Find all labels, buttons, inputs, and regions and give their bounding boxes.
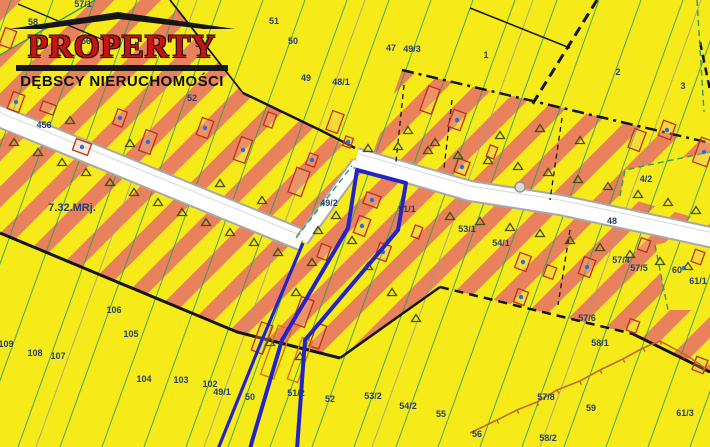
parcel-label: 58/1 bbox=[591, 338, 609, 348]
parcel-label: 51 bbox=[269, 16, 279, 26]
parcel-label: 56 bbox=[472, 429, 482, 439]
building-point-icon bbox=[460, 165, 464, 169]
parcel-label: 47 bbox=[386, 43, 396, 53]
parcel-label: 61/1 bbox=[689, 276, 707, 286]
parcel-label: 49/3 bbox=[403, 44, 421, 54]
parcel-label: 49 bbox=[301, 73, 311, 83]
building-point-icon bbox=[665, 128, 669, 132]
parcel-label: 109 bbox=[0, 339, 14, 349]
point-symbol-icon bbox=[682, 266, 686, 270]
agency-logo: PROPERTY DĘBSCY NIERUCHOMOŚCI bbox=[8, 12, 236, 90]
parcel-label: 108 bbox=[27, 348, 42, 358]
building-point-icon bbox=[346, 140, 350, 144]
building-point-icon bbox=[585, 265, 589, 269]
building-point-icon bbox=[455, 118, 459, 122]
parcel-label: 53/2 bbox=[364, 391, 382, 401]
parcel-label: 103 bbox=[173, 375, 188, 385]
parcel-label: 57/8 bbox=[537, 392, 555, 402]
parcel-label: 50 bbox=[288, 36, 298, 46]
parcel-label: 51/2 bbox=[287, 388, 305, 398]
parcel-label: 57/5 bbox=[630, 263, 648, 273]
parcel-label: 57/1 bbox=[74, 0, 92, 9]
parcel-label: 2 bbox=[615, 67, 620, 77]
parcel-label: 105 bbox=[123, 329, 138, 339]
parcel-label: 50 bbox=[245, 392, 255, 402]
parcel-label: 107 bbox=[50, 351, 65, 361]
map-viewport[interactable]: 57/158565351504749/34948/15212345649/251… bbox=[0, 0, 710, 447]
parcel-label: 53/1 bbox=[458, 224, 476, 234]
parcel-label: 104 bbox=[136, 374, 151, 384]
parcel-label: 57/6 bbox=[578, 313, 596, 323]
building-point-icon bbox=[360, 224, 364, 228]
building-point-icon bbox=[370, 198, 374, 202]
parcel-label: 49/1 bbox=[213, 387, 231, 397]
building-point-icon bbox=[241, 148, 245, 152]
logo-title: PROPERTY bbox=[8, 30, 236, 64]
parcel-label: 3 bbox=[680, 81, 685, 91]
building-point-icon bbox=[519, 295, 523, 299]
parcel-label: 49/2 bbox=[320, 198, 338, 208]
parcel-label: 57/4 bbox=[612, 255, 630, 265]
parcel-label: 52 bbox=[325, 394, 335, 404]
parcel-label: 55 bbox=[436, 409, 446, 419]
building-point-icon bbox=[80, 145, 84, 149]
building-point-icon bbox=[118, 116, 122, 120]
building-point-icon bbox=[702, 150, 706, 154]
building-point-icon bbox=[310, 158, 314, 162]
building-point-icon bbox=[14, 100, 18, 104]
parcel-label: 54/2 bbox=[399, 401, 417, 411]
well-circle-icon bbox=[515, 182, 525, 192]
parcel-label: 58/2 bbox=[539, 433, 557, 443]
parcel-label: 51/1 bbox=[398, 204, 416, 214]
parcel-label: 60 bbox=[672, 265, 682, 275]
parcel-label: 52 bbox=[187, 93, 197, 103]
building-point-icon bbox=[203, 126, 207, 130]
building-point-icon bbox=[146, 140, 150, 144]
building-point-icon bbox=[521, 260, 525, 264]
parcel-label: 48 bbox=[607, 216, 617, 226]
parcel-label: 4/2 bbox=[640, 174, 653, 184]
parcel-label: 7.32.MRj. bbox=[48, 202, 96, 214]
logo-roof-icon bbox=[8, 12, 236, 30]
parcel-label: 106 bbox=[106, 305, 121, 315]
parcel-label: 54/1 bbox=[492, 238, 510, 248]
parcel-label: 59 bbox=[586, 403, 596, 413]
parcel-label: 1 bbox=[483, 50, 488, 60]
parcel-label: 61/3 bbox=[676, 408, 694, 418]
parcel-label: 456 bbox=[36, 120, 51, 130]
logo-divider bbox=[16, 65, 228, 71]
parcel-label: 48/1 bbox=[332, 77, 350, 87]
logo-subtitle: DĘBSCY NIERUCHOMOŚCI bbox=[8, 73, 236, 90]
